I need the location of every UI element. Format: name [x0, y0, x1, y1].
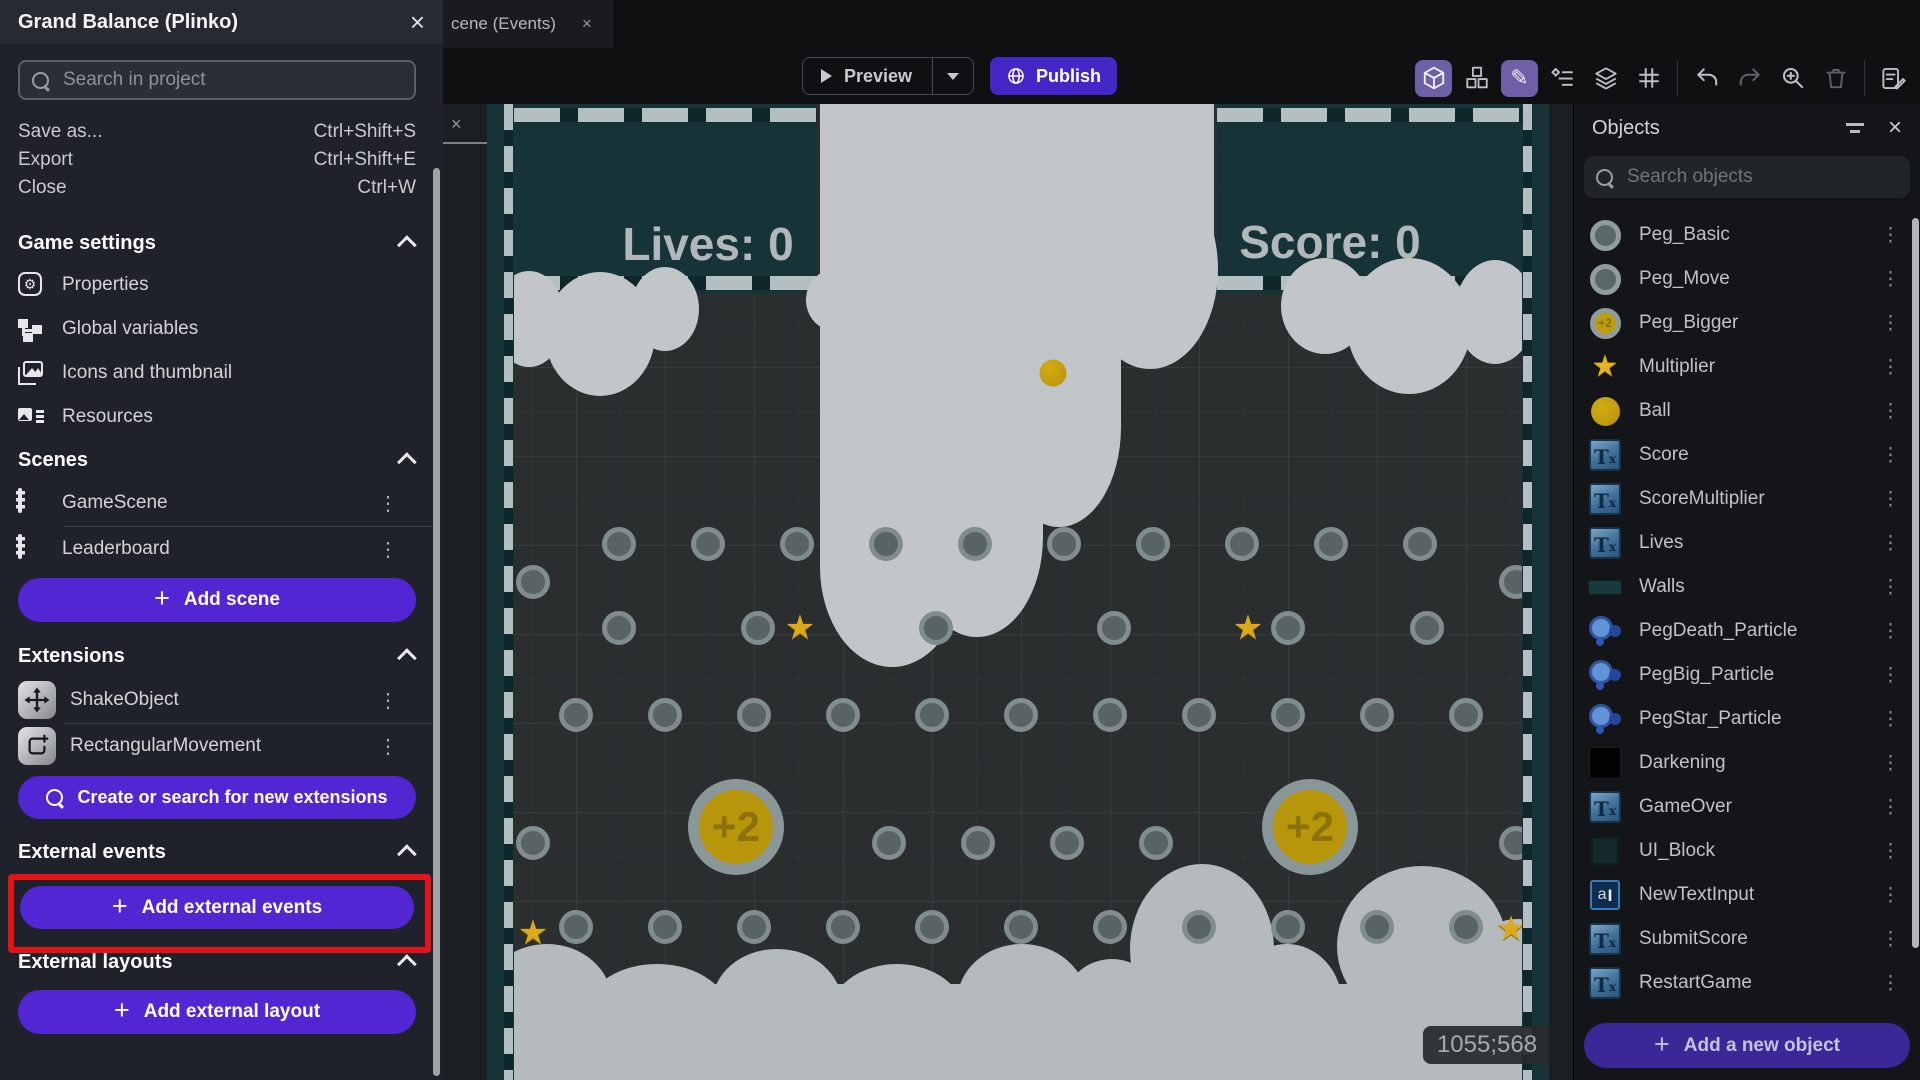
- particle-icon: [1588, 658, 1622, 692]
- search-icon: [1596, 169, 1613, 186]
- extension-item-rectangularmovement[interactable]: RectangularMovement ⋮: [18, 723, 424, 769]
- variables-tree-icon: [18, 316, 44, 342]
- peg-object[interactable]: [1360, 698, 1394, 732]
- top-bar: cene (Events) × Preview Publish: [443, 0, 1920, 104]
- peg-object[interactable]: [741, 611, 775, 645]
- outline-list-icon: [1550, 65, 1576, 91]
- project-title-bar: Grand Balance (Plinko) ×: [0, 0, 443, 44]
- multiplier-star-object[interactable]: ★: [518, 916, 548, 950]
- section-external-events[interactable]: External events: [18, 837, 416, 867]
- grid-icon: [1636, 65, 1662, 91]
- peg-object[interactable]: [1449, 910, 1483, 944]
- peg-object[interactable]: [1314, 527, 1348, 561]
- add-external-layout-button[interactable]: + Add external layout: [18, 990, 416, 1034]
- text-icon: Tx: [1589, 923, 1621, 955]
- plus-icon: +: [154, 585, 170, 612]
- peg-icon: [1590, 220, 1621, 251]
- objects-search-input[interactable]: [1625, 165, 1898, 189]
- kebab-menu-icon[interactable]: ⋮: [378, 688, 424, 713]
- chevron-up-icon: [397, 648, 417, 668]
- object-list-item-ui_block[interactable]: UI_Block ⋮: [1574, 829, 1920, 873]
- redo-icon: [1737, 65, 1763, 91]
- object-list-item-multiplier[interactable]: ★ Multiplier ⋮: [1574, 345, 1920, 389]
- hidden-tab-close-icon[interactable]: ×: [451, 114, 462, 135]
- add-new-object-button[interactable]: + Add a new object: [1584, 1023, 1910, 1068]
- globe-icon: [1006, 66, 1026, 86]
- chevron-up-icon: [397, 235, 417, 255]
- images-icon: [18, 360, 44, 386]
- publish-button[interactable]: Publish: [990, 57, 1117, 95]
- peg-bigger-icon: +2: [1590, 308, 1621, 339]
- tab-scene-events[interactable]: cene (Events) ×: [443, 0, 613, 48]
- chevron-down-icon[interactable]: [947, 73, 959, 80]
- project-panel-close-icon[interactable]: ×: [410, 9, 425, 35]
- trash-icon: [1823, 65, 1849, 91]
- shortcut-label: Ctrl+Shift+S: [314, 121, 416, 143]
- project-title: Grand Balance (Plinko): [18, 11, 410, 34]
- peg-object[interactable]: [516, 565, 550, 599]
- object-list-item-restartgame[interactable]: Tx RestartGame ⋮: [1574, 961, 1920, 1005]
- create-search-extensions-button[interactable]: Create or search for new extensions: [18, 776, 416, 819]
- object-list-item-peg_basic[interactable]: Peg_Basic ⋮: [1574, 213, 1920, 257]
- menu-save-as[interactable]: Save as... Ctrl+Shift+S: [18, 118, 416, 146]
- text-icon: Tx: [1589, 483, 1621, 515]
- peg-object[interactable]: [1182, 698, 1216, 732]
- black-icon: [1589, 747, 1621, 779]
- peg-object[interactable]: [1449, 698, 1483, 732]
- text-icon: Tx: [1589, 439, 1621, 471]
- score-text[interactable]: Score: 0: [1239, 215, 1421, 269]
- peg-object[interactable]: [1093, 910, 1127, 944]
- object-list-item-ball[interactable]: Ball ⋮: [1574, 389, 1920, 433]
- project-panel-scrollbar[interactable]: [433, 168, 440, 1076]
- ball-icon: [1591, 397, 1620, 426]
- section-game-settings[interactable]: Game settings: [18, 228, 416, 258]
- peg-object[interactable]: [919, 611, 953, 645]
- tab-close-icon[interactable]: ×: [582, 14, 592, 34]
- peg-object[interactable]: [559, 698, 593, 732]
- cube-icon: [1421, 65, 1447, 91]
- object-list-item-newtextinput[interactable]: aI NewTextInput ⋮: [1574, 873, 1920, 917]
- peg-object[interactable]: [1004, 910, 1038, 944]
- peg-object[interactable]: [958, 527, 992, 561]
- instances-button[interactable]: [1458, 60, 1495, 97]
- resources-icon: [18, 404, 44, 430]
- kebab-menu-icon[interactable]: ⋮: [378, 491, 424, 516]
- text-icon: Tx: [1589, 527, 1621, 559]
- peg-object[interactable]: [1136, 527, 1170, 561]
- peg-object[interactable]: [602, 527, 636, 561]
- menu-export[interactable]: Export Ctrl+Shift+E: [18, 146, 416, 174]
- rectangular-path-icon: [18, 727, 56, 765]
- objects-panel-close-icon[interactable]: ×: [1888, 116, 1902, 140]
- tab-label: cene (Events): [451, 14, 556, 34]
- peg-object[interactable]: [1139, 826, 1173, 860]
- delete-button[interactable]: [1817, 60, 1854, 97]
- peg-object[interactable]: [737, 698, 771, 732]
- peg-object[interactable]: [737, 910, 771, 944]
- redo-button[interactable]: [1731, 60, 1768, 97]
- peg-object[interactable]: [602, 611, 636, 645]
- peg-object[interactable]: [1271, 910, 1305, 944]
- item-global-variables[interactable]: Global variables: [18, 307, 424, 351]
- cursor-coordinates-badge: 1055;568: [1423, 1026, 1549, 1064]
- app-window: cene (Events) × Preview Publish: [0, 0, 1920, 1080]
- project-search-input[interactable]: [61, 68, 402, 92]
- peg-object[interactable]: [1050, 826, 1084, 860]
- peg-object[interactable]: [1403, 527, 1437, 561]
- text-icon: Tx: [1589, 967, 1621, 999]
- objects-panel-header: Objects ×: [1574, 104, 1920, 152]
- wall-left[interactable]: [487, 104, 514, 1080]
- ball-object[interactable]: [1040, 360, 1067, 387]
- peg-object[interactable]: [869, 527, 903, 561]
- layers-icon: [1593, 65, 1619, 91]
- project-manager-panel: Grand Balance (Plinko) × Save as... Ctrl…: [0, 0, 443, 1080]
- wall-tiles: [1217, 108, 1524, 122]
- object-list-item-lives[interactable]: Tx Lives ⋮: [1574, 521, 1920, 565]
- filter-icon[interactable]: [1846, 121, 1866, 135]
- scene-item-leaderboard[interactable]: Leaderboard ⋮: [18, 526, 424, 572]
- play-icon: [821, 69, 832, 83]
- chevron-up-icon: [397, 844, 417, 864]
- peg-object[interactable]: [915, 698, 949, 732]
- section-external-layouts[interactable]: External layouts: [18, 947, 416, 977]
- section-scenes[interactable]: Scenes: [18, 445, 416, 475]
- events-sheet-button[interactable]: [1875, 60, 1912, 97]
- pencil-icon: ✎: [1510, 67, 1528, 89]
- peg-object[interactable]: [826, 698, 860, 732]
- extension-item-shakeobject[interactable]: ShakeObject ⋮: [18, 677, 424, 723]
- object-list-item-submitscore[interactable]: Tx SubmitScore ⋮: [1574, 917, 1920, 961]
- peg-object[interactable]: [1047, 527, 1081, 561]
- tab-indicator: [443, 142, 488, 144]
- cubes-icon: [1464, 65, 1490, 91]
- 3d-view-button[interactable]: [1415, 60, 1452, 97]
- object-list-item-scoremultiplier[interactable]: Tx ScoreMultiplier ⋮: [1574, 477, 1920, 521]
- particle-icon: [1588, 614, 1622, 648]
- editor-toolbar: ✎: [1415, 59, 1912, 97]
- kebab-menu-icon[interactable]: ⋮: [378, 537, 424, 562]
- item-resources[interactable]: Resources: [18, 395, 424, 439]
- peg-object[interactable]: [1097, 611, 1131, 645]
- add-external-events-button[interactable]: + Add external events: [20, 886, 414, 929]
- peg-object[interactable]: [1271, 698, 1305, 732]
- kebab-menu-icon[interactable]: ⋮: [378, 734, 424, 759]
- peg-object[interactable]: [1004, 698, 1038, 732]
- peg-object[interactable]: [780, 527, 814, 561]
- plus-icon: +: [1654, 1031, 1670, 1058]
- peg-object[interactable]: [1182, 910, 1216, 944]
- peg-bigger-object[interactable]: +2: [688, 779, 784, 875]
- object-list-item-walls[interactable]: Walls ⋮: [1574, 565, 1920, 609]
- peg-object[interactable]: [516, 826, 550, 860]
- chevron-up-icon: [397, 452, 417, 472]
- peg-object[interactable]: [559, 910, 593, 944]
- undo-button[interactable]: [1688, 60, 1725, 97]
- peg-object[interactable]: [1225, 527, 1259, 561]
- objects-panel: Objects × Peg_Basic ⋮ Peg_Move ⋮ +2 Peg_…: [1573, 104, 1920, 1080]
- peg-object[interactable]: [1271, 611, 1305, 645]
- wall-right[interactable]: [1522, 104, 1549, 1080]
- star-icon: ★: [1592, 352, 1619, 382]
- object-list-item-pegstar_particle[interactable]: PegStar_Particle ⋮: [1574, 697, 1920, 741]
- undo-icon: [1694, 65, 1720, 91]
- objects-scrollbar[interactable]: [1912, 218, 1919, 948]
- object-list-item-peg_move[interactable]: Peg_Move ⋮: [1574, 257, 1920, 301]
- search-icon: [46, 789, 63, 806]
- project-search[interactable]: [18, 60, 416, 100]
- add-scene-button[interactable]: + Add scene: [18, 578, 416, 622]
- outline-button[interactable]: [1544, 60, 1581, 97]
- object-menu-icon[interactable]: ⋮: [1881, 972, 1920, 995]
- zoom-in-button[interactable]: [1774, 60, 1811, 97]
- plus-icon: +: [112, 893, 128, 920]
- peg-bigger-object[interactable]: +2: [1262, 779, 1358, 875]
- wall-icon: [1588, 580, 1622, 595]
- peg-object[interactable]: [826, 910, 860, 944]
- peg-object[interactable]: [1360, 910, 1394, 944]
- peg-object[interactable]: [1093, 698, 1127, 732]
- peg-object[interactable]: [1410, 611, 1444, 645]
- particle-icon: [1588, 702, 1622, 736]
- block-icon: [1590, 836, 1620, 866]
- objects-search[interactable]: [1584, 156, 1910, 198]
- plus-icon: +: [114, 997, 130, 1024]
- event-sheet-edit-icon: [1880, 65, 1907, 92]
- object-list-item-score[interactable]: Tx Score ⋮: [1574, 433, 1920, 477]
- lives-text[interactable]: Lives: 0: [622, 217, 793, 271]
- object-list-item-gameover[interactable]: Tx GameOver ⋮: [1574, 785, 1920, 829]
- scene-editor-canvas: × x25%: [443, 104, 1573, 1080]
- grid-button[interactable]: [1630, 60, 1667, 97]
- edit-mode-button[interactable]: ✎: [1501, 60, 1538, 97]
- peg-object[interactable]: [648, 910, 682, 944]
- wall-tiles: [514, 108, 817, 122]
- item-icons-thumbnail[interactable]: Icons and thumbnail: [18, 351, 424, 395]
- film-icon: [18, 490, 44, 516]
- film-icon: [18, 536, 44, 562]
- multiplier-star-object[interactable]: ★: [785, 611, 815, 645]
- peg-object[interactable]: [691, 527, 725, 561]
- object-list-item-peg_bigger[interactable]: +2 Peg_Bigger ⋮: [1574, 301, 1920, 345]
- preview-button[interactable]: Preview: [802, 57, 974, 95]
- multiplier-star-object[interactable]: ★: [1233, 611, 1263, 645]
- gear-icon: ⚙: [18, 272, 44, 298]
- peg-icon: [1590, 264, 1621, 295]
- objects-list: Peg_Basic ⋮ Peg_Move ⋮ +2 Peg_Bigger ⋮ ★…: [1574, 213, 1920, 1005]
- peg-object[interactable]: [872, 826, 906, 860]
- object-list-item-darkening[interactable]: Darkening ⋮: [1574, 741, 1920, 785]
- layers-button[interactable]: [1587, 60, 1624, 97]
- item-properties[interactable]: ⚙ Properties: [18, 263, 424, 307]
- shortcut-label: Ctrl+W: [357, 177, 416, 199]
- object-list-item-pegbig_particle[interactable]: PegBig_Particle ⋮: [1574, 653, 1920, 697]
- peg-object[interactable]: [915, 910, 949, 944]
- text-icon: Tx: [1589, 791, 1621, 823]
- shortcut-label: Ctrl+Shift+E: [314, 149, 416, 171]
- search-icon: [32, 72, 49, 89]
- move-arrows-icon: [18, 681, 56, 719]
- input-icon: aI: [1590, 880, 1620, 910]
- chevron-up-icon: [397, 954, 417, 974]
- zoom-in-icon: [1780, 65, 1806, 91]
- peg-object[interactable]: [961, 826, 995, 860]
- scene-item-gamescene[interactable]: GameScene ⋮: [18, 480, 424, 526]
- game-viewport[interactable]: x25%: [487, 104, 1549, 1080]
- section-extensions[interactable]: Extensions: [18, 641, 416, 671]
- peg-object[interactable]: [648, 698, 682, 732]
- object-list-item-pegdeath_particle[interactable]: PegDeath_Particle ⋮: [1574, 609, 1920, 653]
- menu-close[interactable]: Close Ctrl+W: [18, 174, 416, 202]
- objects-panel-title: Objects: [1592, 117, 1824, 140]
